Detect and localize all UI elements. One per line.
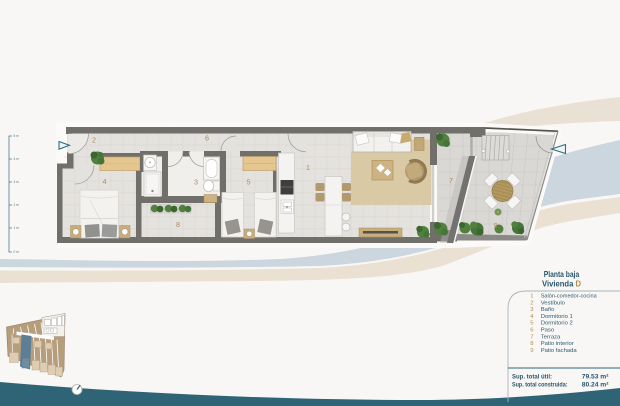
svg-text:1: 1 xyxy=(306,163,310,172)
svg-text:9: 9 xyxy=(530,348,533,354)
svg-text:Vivienda D: Vivienda D xyxy=(542,280,581,289)
svg-text:6: 6 xyxy=(205,134,209,143)
svg-text:Salón-comedor-cocina: Salón-comedor-cocina xyxy=(541,294,598,300)
svg-text:Sup. total útil:: Sup. total útil: xyxy=(512,374,552,381)
svg-text:Dormitorio 2: Dormitorio 2 xyxy=(541,321,573,327)
svg-text:Patio fachada: Patio fachada xyxy=(541,348,578,354)
svg-text:Dormitorio 1: Dormitorio 1 xyxy=(541,314,573,320)
svg-text:2: 2 xyxy=(530,300,533,306)
svg-text:5 m: 5 m xyxy=(14,134,20,138)
svg-text:Terraza: Terraza xyxy=(541,334,561,340)
svg-text:80.24 m²: 80.24 m² xyxy=(582,381,610,388)
svg-text:7: 7 xyxy=(530,334,533,340)
svg-text:0 m: 0 m xyxy=(14,250,20,254)
svg-text:2 m: 2 m xyxy=(14,203,20,207)
svg-text:Vestíbulo: Vestíbulo xyxy=(541,300,566,306)
svg-text:2: 2 xyxy=(92,136,96,145)
svg-text:9: 9 xyxy=(494,221,498,230)
svg-text:Sup. total construida:: Sup. total construida: xyxy=(512,381,568,388)
svg-text:1 m: 1 m xyxy=(14,226,20,230)
svg-text:3: 3 xyxy=(194,178,198,187)
svg-text:Patio interior: Patio interior xyxy=(541,341,574,347)
svg-text:7: 7 xyxy=(449,176,453,185)
svg-text:Baño: Baño xyxy=(541,307,555,313)
svg-text:4 m: 4 m xyxy=(14,157,20,161)
svg-text:8: 8 xyxy=(176,220,180,229)
svg-text:1: 1 xyxy=(530,294,533,300)
svg-text:Planta baja: Planta baja xyxy=(544,270,580,279)
svg-text:4: 4 xyxy=(103,177,107,186)
svg-text:3 m: 3 m xyxy=(14,180,20,184)
svg-text:Paso: Paso xyxy=(541,328,555,334)
svg-text:79.53 m²: 79.53 m² xyxy=(582,374,610,381)
svg-text:5: 5 xyxy=(247,178,251,187)
